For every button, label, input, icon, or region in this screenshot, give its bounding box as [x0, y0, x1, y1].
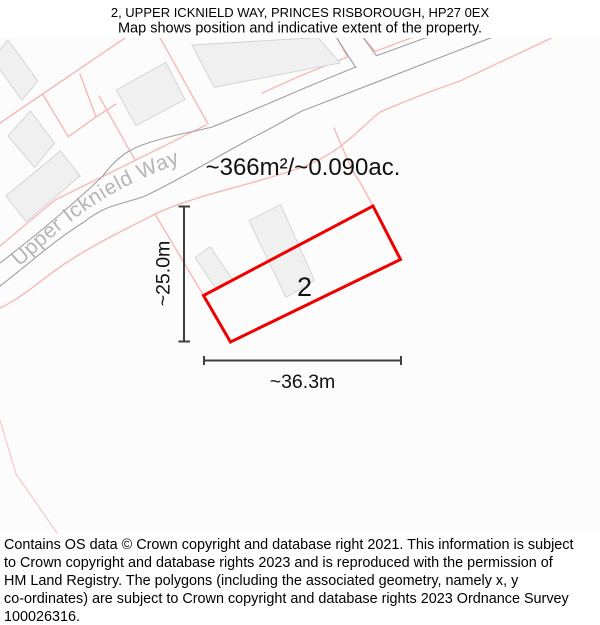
svg-text:co-ordinates) are subject to C: co-ordinates) are subject to Crown copyr… — [4, 591, 570, 607]
svg-text:Map shows position and indicat: Map shows position and indicative extent… — [118, 21, 482, 37]
svg-text:2: 2 — [297, 272, 312, 302]
svg-text:2, UPPER ICKNIELD WAY, PRINCES: 2, UPPER ICKNIELD WAY, PRINCES RISBOROUG… — [111, 5, 490, 20]
svg-text:to Crown copyright and databas: to Crown copyright and database rights 2… — [4, 555, 554, 571]
svg-text:HM Land Registry. The polygons: HM Land Registry. The polygons (includin… — [4, 573, 519, 589]
svg-text:~366m²/~0.090ac.: ~366m²/~0.090ac. — [206, 154, 401, 181]
svg-text:~36.3m: ~36.3m — [270, 371, 336, 393]
svg-text:Contains OS data © Crown copyr: Contains OS data © Crown copyright and d… — [4, 537, 573, 553]
svg-text:100026316.: 100026316. — [4, 609, 80, 625]
svg-text:~25.0m: ~25.0m — [153, 241, 175, 307]
